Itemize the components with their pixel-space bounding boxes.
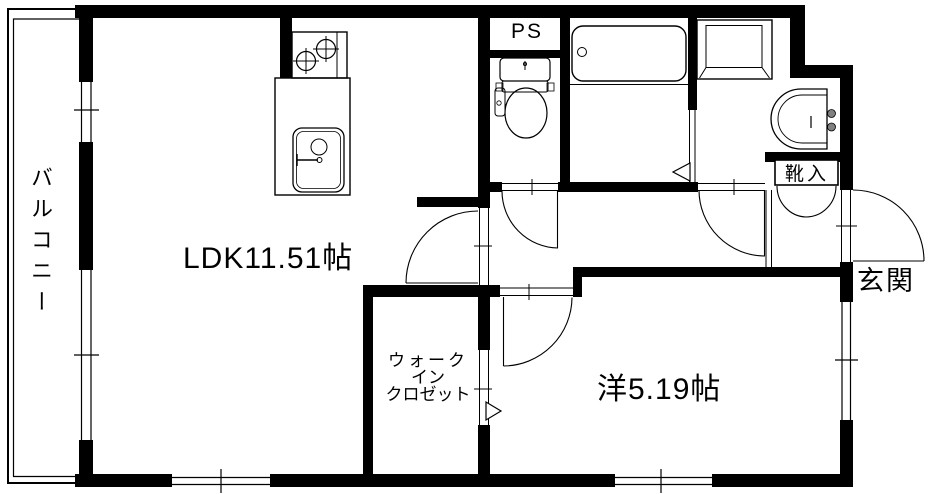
walk-in-closet-label-line3: クロゼット xyxy=(386,385,471,404)
bedroom-label: 洋5.19帖 xyxy=(597,364,721,408)
toilet-icon xyxy=(495,58,554,138)
shoe-cabinet-doors xyxy=(777,186,836,217)
kitchen-sink-icon xyxy=(293,128,344,192)
washer-pan-icon xyxy=(697,20,772,79)
window-ldk-bottom xyxy=(172,469,270,493)
pipe-space-label: PS xyxy=(505,20,549,44)
bedroom-door-frame xyxy=(500,284,573,300)
kitchen-counter xyxy=(275,78,350,195)
entrance-label: 玄関 xyxy=(857,259,915,298)
window-bedroom-right xyxy=(835,300,858,420)
window-ldk-left-upper xyxy=(74,82,99,142)
window-ldk-left-lower xyxy=(74,270,99,440)
front-door-frame xyxy=(836,190,857,262)
toilet-door-frame xyxy=(502,179,558,195)
front-door xyxy=(853,190,924,261)
toilet-door xyxy=(502,191,558,248)
ldk-door xyxy=(406,211,478,283)
floor-plan: バルコニー LDK11.51帖 PS ウォーク イン クロゼット 洋5.19帖 … xyxy=(0,0,935,494)
balcony-label: バルコニー xyxy=(24,166,56,336)
washroom-door xyxy=(699,190,765,256)
bathtub-icon xyxy=(570,26,688,85)
window-bedroom-bottom xyxy=(615,469,712,493)
ldk-label: LDK11.51帖 xyxy=(183,233,353,277)
washbasin-icon xyxy=(771,89,835,149)
closet-door-arrow xyxy=(486,402,501,420)
shoe-cabinet-label: 靴入 xyxy=(776,159,838,186)
walk-in-closet-label: ウォーク イン クロゼット xyxy=(361,352,495,403)
floor-plan-drawing xyxy=(0,0,935,494)
washroom-door-frame xyxy=(698,179,765,195)
entrance-step-line xyxy=(766,190,772,267)
gas-stove-icon xyxy=(292,32,347,78)
bedroom-door xyxy=(504,297,573,366)
interior-walls xyxy=(280,15,853,474)
bath-door-arrow xyxy=(673,163,690,181)
ldk-door-frame xyxy=(474,208,492,285)
